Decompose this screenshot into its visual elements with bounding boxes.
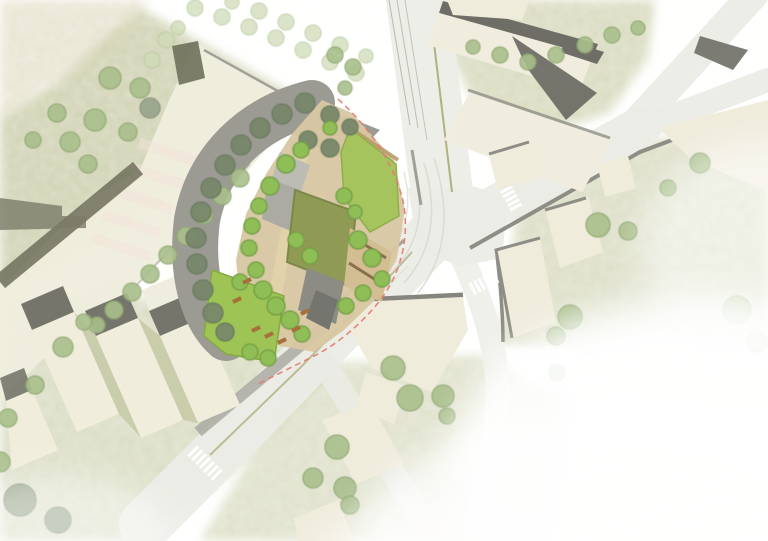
- pale-tree-icon: [278, 14, 294, 30]
- site-plan-svg: [0, 0, 768, 541]
- bright-tree-icon: [241, 240, 257, 256]
- pale-tree-icon: [214, 9, 230, 25]
- dark-tree-icon: [187, 254, 207, 274]
- bright-tree-icon: [336, 188, 352, 204]
- mid-tree-icon: [586, 213, 610, 237]
- bright-tree-icon: [323, 121, 337, 135]
- dark-tree-icon: [272, 104, 292, 124]
- bright-tree-icon: [288, 232, 304, 248]
- mid-tree-icon: [327, 47, 343, 63]
- mid-tree-icon: [631, 21, 645, 35]
- mid-tree-icon: [119, 123, 137, 141]
- dark-tree-icon: [191, 202, 211, 222]
- bright-tree-icon: [251, 198, 267, 214]
- pale-tree-icon: [359, 49, 373, 63]
- bright-tree-icon: [374, 271, 390, 287]
- dark-tree-icon: [250, 118, 270, 138]
- bright-tree-icon: [338, 298, 354, 314]
- bright-tree-icon: [242, 344, 258, 360]
- mid-tree-icon: [105, 301, 123, 319]
- pale-tree-icon: [295, 42, 311, 58]
- dark-tree-icon: [321, 139, 339, 157]
- bright-tree-icon: [355, 285, 371, 301]
- mid-tree-icon: [439, 408, 455, 424]
- dark-tree-icon: [342, 119, 358, 135]
- mid-tree-icon: [48, 104, 66, 122]
- mid-tree-icon: [141, 265, 159, 283]
- pale-tree-icon: [225, 0, 239, 9]
- mid-tree-icon: [341, 496, 359, 514]
- mid-tree-icon: [397, 385, 423, 411]
- mid-tree-icon: [325, 435, 349, 459]
- pale-tree-icon: [305, 25, 321, 41]
- bright-tree-icon: [261, 177, 279, 195]
- mid-tree-icon: [604, 27, 620, 43]
- mid-tree-icon: [520, 54, 536, 70]
- mid-tree-icon: [159, 246, 177, 264]
- bright-tree-icon: [281, 311, 299, 329]
- pale-tree-icon: [171, 21, 185, 35]
- mid-tree-icon: [577, 37, 593, 53]
- dark-tree-icon: [203, 303, 223, 323]
- mid-tree-icon: [345, 59, 361, 75]
- pale-tree-icon: [251, 3, 267, 19]
- pale-tree-icon: [158, 32, 174, 48]
- bright-tree-icon: [267, 297, 285, 315]
- pale-tree-icon: [268, 30, 284, 46]
- dark-tree-icon: [216, 323, 234, 341]
- mid-tree-icon: [548, 47, 564, 63]
- mid-tree-icon: [130, 78, 150, 98]
- mid-tree-icon: [466, 40, 480, 54]
- dark-tree-icon: [295, 93, 315, 113]
- dark-tree-icon: [193, 280, 213, 300]
- gray-tree-icon: [140, 98, 160, 118]
- mid-tree-icon: [123, 283, 141, 301]
- site-plan-scene: [0, 0, 768, 541]
- bright-tree-icon: [302, 248, 318, 264]
- mid-tree-icon: [79, 155, 97, 173]
- pale-tree-icon: [144, 52, 160, 68]
- dark-tree-icon: [201, 178, 221, 198]
- mid-tree-icon: [492, 47, 508, 63]
- mid-tree-icon: [53, 337, 73, 357]
- site-plan-canvas: [0, 0, 768, 541]
- bright-tree-icon: [254, 281, 272, 299]
- mid-tree-icon: [26, 376, 44, 394]
- bright-tree-icon: [293, 142, 309, 158]
- mid-tree-icon: [432, 385, 454, 407]
- bright-tree-icon: [248, 262, 264, 278]
- mid-tree-icon: [84, 109, 106, 131]
- mid-tree-icon: [338, 81, 352, 95]
- mid-tree-icon: [381, 356, 405, 380]
- dark-tree-icon: [215, 155, 235, 175]
- bright-tree-icon: [277, 155, 295, 173]
- dark-tree-icon: [186, 228, 206, 248]
- mid-tree-icon: [76, 314, 92, 330]
- mid-tree-icon: [619, 222, 637, 240]
- pale-tree-icon: [187, 0, 203, 16]
- mid-tree-icon: [334, 477, 356, 499]
- mid-tree-icon: [60, 132, 80, 152]
- bright-tree-icon: [244, 218, 260, 234]
- bright-tree-icon: [349, 231, 367, 249]
- mid-tree-icon: [25, 132, 41, 148]
- pale-tree-icon: [241, 19, 257, 35]
- mid-tree-icon: [231, 169, 249, 187]
- bright-tree-icon: [363, 249, 381, 267]
- bright-tree-icon: [260, 350, 276, 366]
- dark-tree-icon: [231, 135, 251, 155]
- bright-tree-icon: [348, 205, 362, 219]
- mid-tree-icon: [0, 409, 17, 427]
- mid-tree-icon: [99, 67, 121, 89]
- mid-tree-icon: [303, 468, 323, 488]
